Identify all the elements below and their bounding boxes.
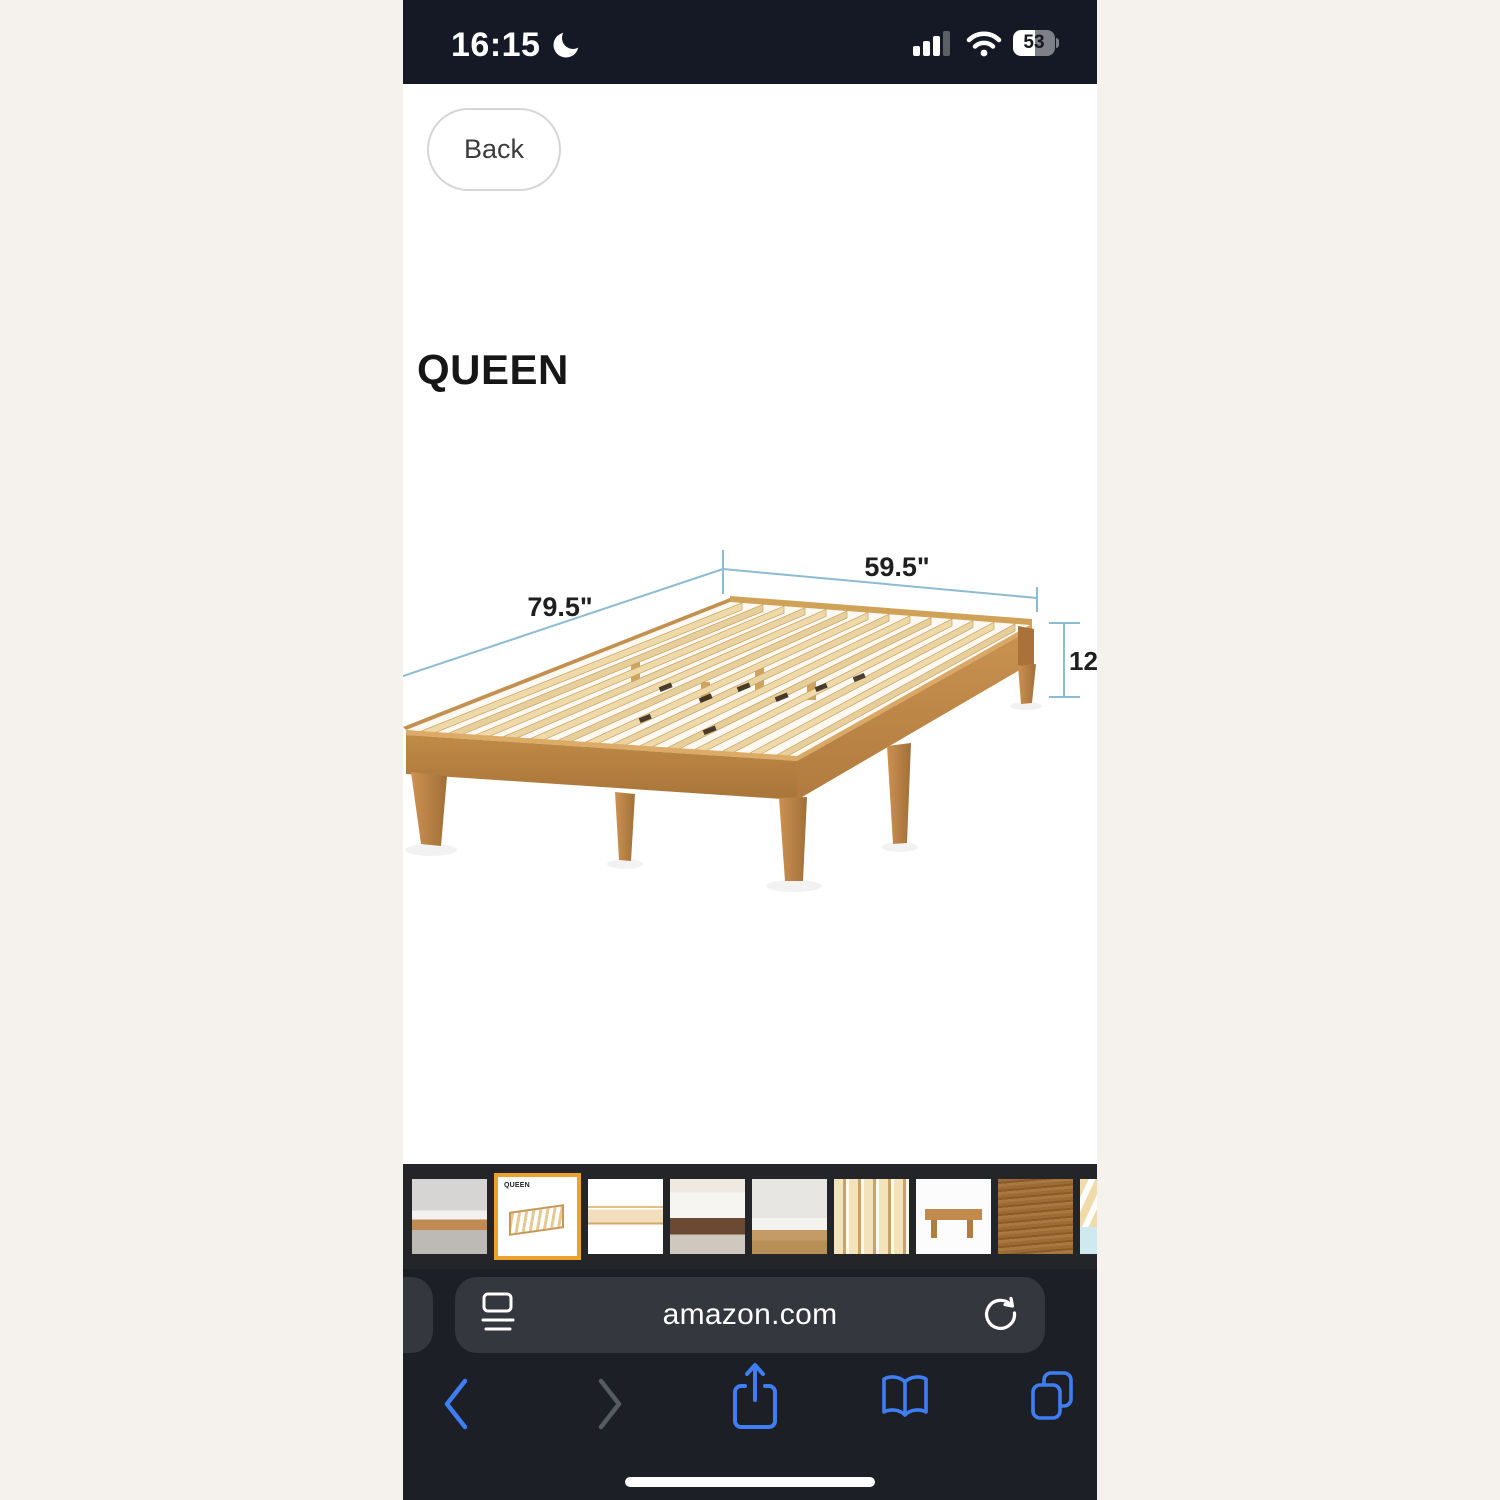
url-text: amazon.com	[455, 1277, 1045, 1353]
thumbnail-7[interactable]	[916, 1179, 991, 1254]
thumbnail-5[interactable]	[752, 1179, 827, 1254]
bookmarks-icon[interactable]	[884, 1377, 926, 1415]
forward-navigation-icon[interactable]	[601, 1381, 619, 1427]
thumbnail-3[interactable]	[588, 1179, 663, 1254]
thumbnail-8[interactable]	[998, 1179, 1073, 1254]
share-icon[interactable]	[735, 1365, 775, 1427]
battery-percent: 53	[1013, 30, 1055, 56]
length-dimension-label: 79.5"	[527, 592, 592, 622]
reload-icon[interactable]	[981, 1296, 1021, 1336]
mini-bed-diagram	[509, 1204, 564, 1235]
product-image[interactable]: 79.5" 59.5" 12"	[403, 440, 1097, 1010]
browser-chrome: amazon.com	[403, 1269, 1097, 1500]
cellular-signal-icon	[913, 28, 955, 58]
previous-tab-edge[interactable]	[403, 1277, 433, 1353]
address-bar[interactable]: amazon.com	[455, 1277, 1045, 1353]
back-navigation-icon[interactable]	[447, 1381, 465, 1427]
thumbnail-6[interactable]	[834, 1179, 909, 1254]
clock: 16:15	[451, 26, 540, 65]
reader-page-icon[interactable]	[481, 1291, 521, 1341]
thumbnail-1[interactable]	[412, 1179, 487, 1254]
wifi-icon	[965, 28, 1003, 58]
thumbnail-2-image: QUEEN	[500, 1179, 575, 1254]
thumbnail-4[interactable]	[670, 1179, 745, 1254]
thumbnail-strip: QUEEN	[403, 1164, 1097, 1269]
back-button[interactable]: Back	[427, 108, 561, 191]
browser-toolbar	[403, 1360, 1097, 1450]
home-indicator[interactable]	[625, 1477, 875, 1487]
width-dimension-label: 59.5"	[864, 552, 929, 582]
phone-screen: 16:15 53	[403, 0, 1097, 1500]
status-bar: 16:15 53	[403, 0, 1097, 84]
thumbnail-micro-label: QUEEN	[504, 1182, 530, 1189]
height-dimension-label: 12"	[1069, 646, 1097, 676]
back-button-label: Back	[464, 134, 524, 165]
do-not-disturb-moon-icon	[551, 26, 587, 62]
thumbnail-9[interactable]	[1080, 1179, 1097, 1254]
tabs-icon[interactable]	[1033, 1373, 1071, 1418]
page-title: QUEEN	[417, 346, 569, 394]
battery-icon: 53	[1013, 30, 1059, 56]
thumbnail-2-selected[interactable]: QUEEN	[494, 1173, 581, 1260]
bed-corner-post	[1018, 626, 1034, 668]
